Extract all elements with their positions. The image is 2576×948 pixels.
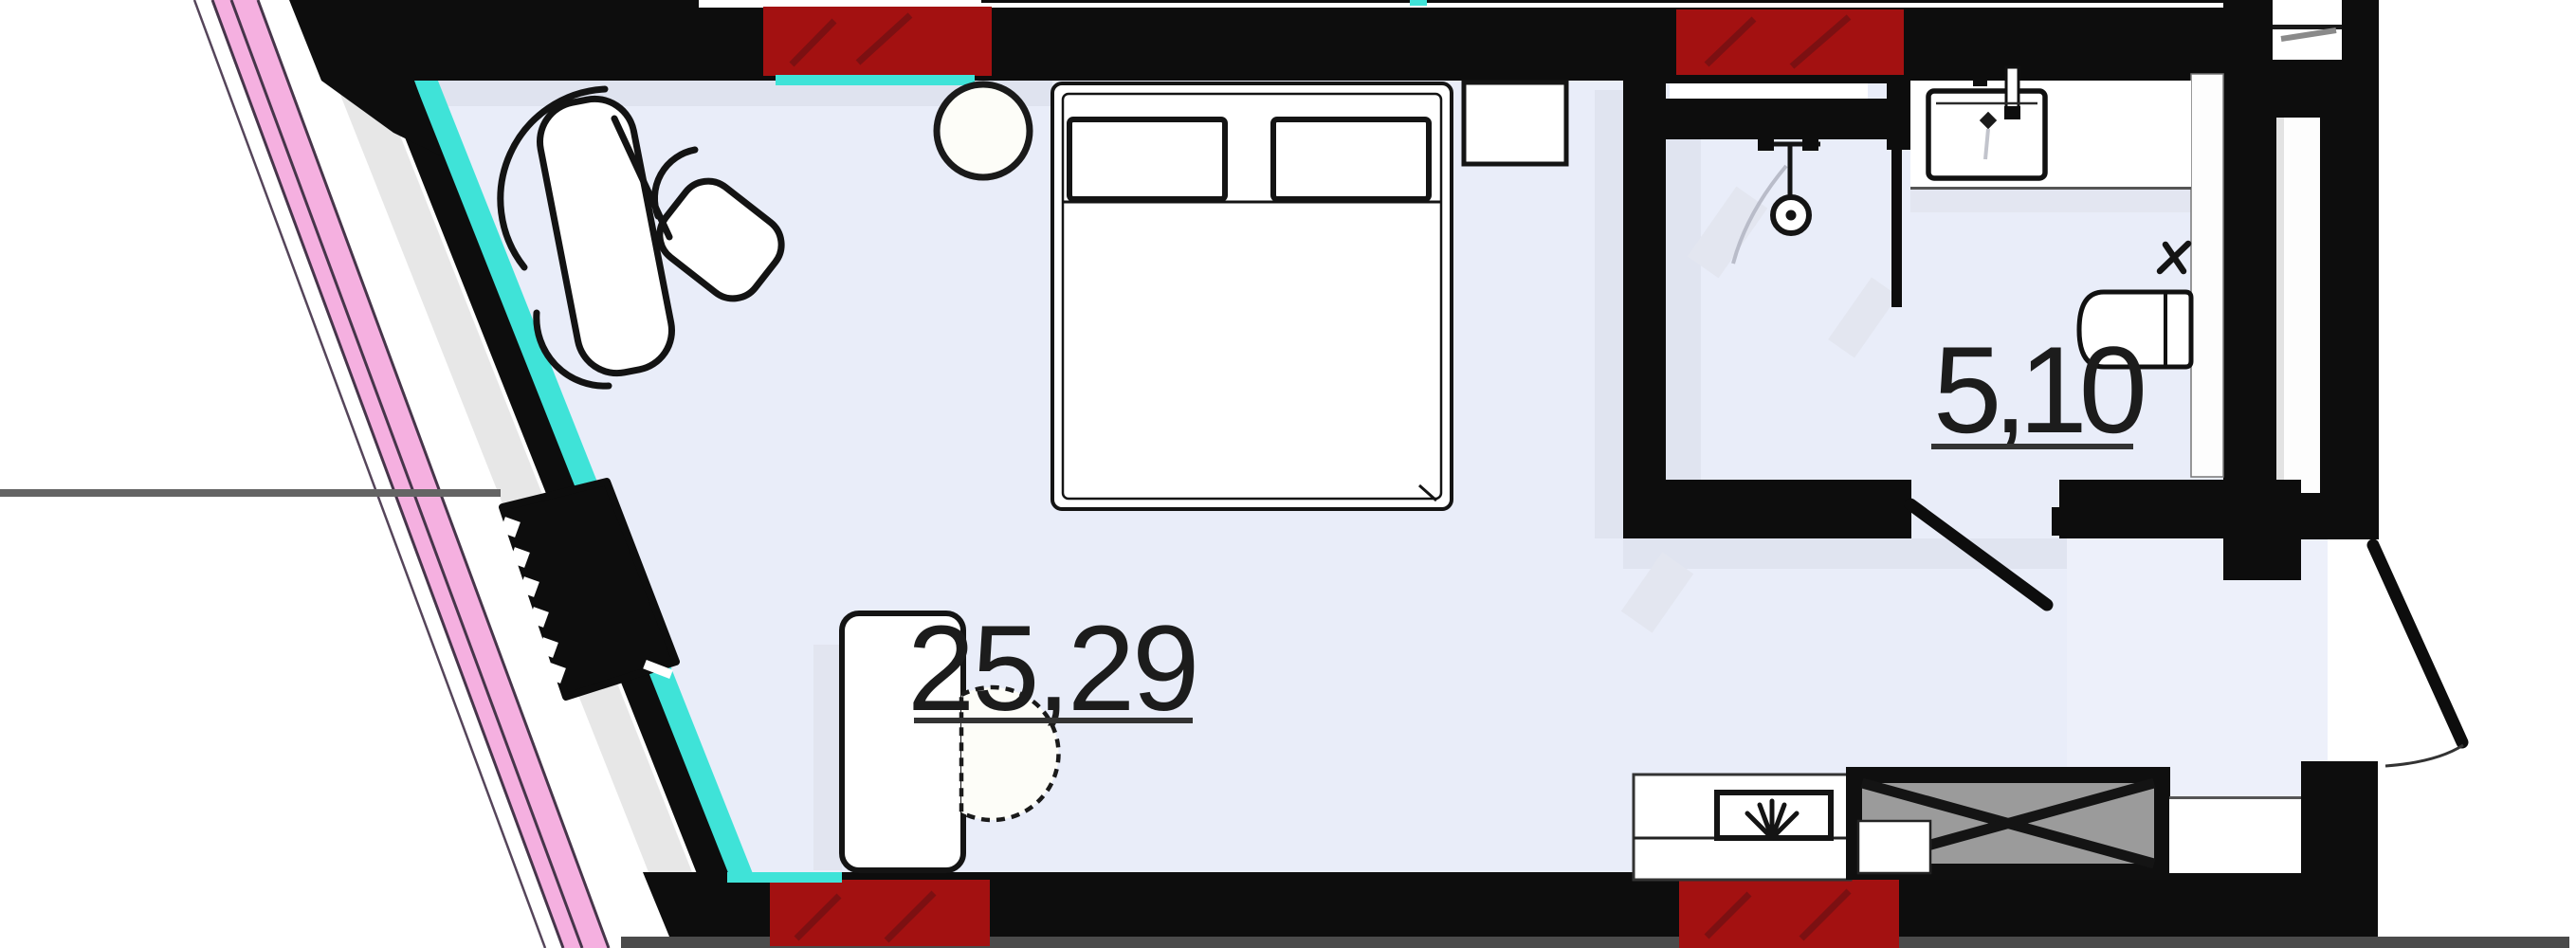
svg-text:5,10: 5,10 [1933,320,2144,459]
svg-text:25,29: 25,29 [907,601,1197,737]
